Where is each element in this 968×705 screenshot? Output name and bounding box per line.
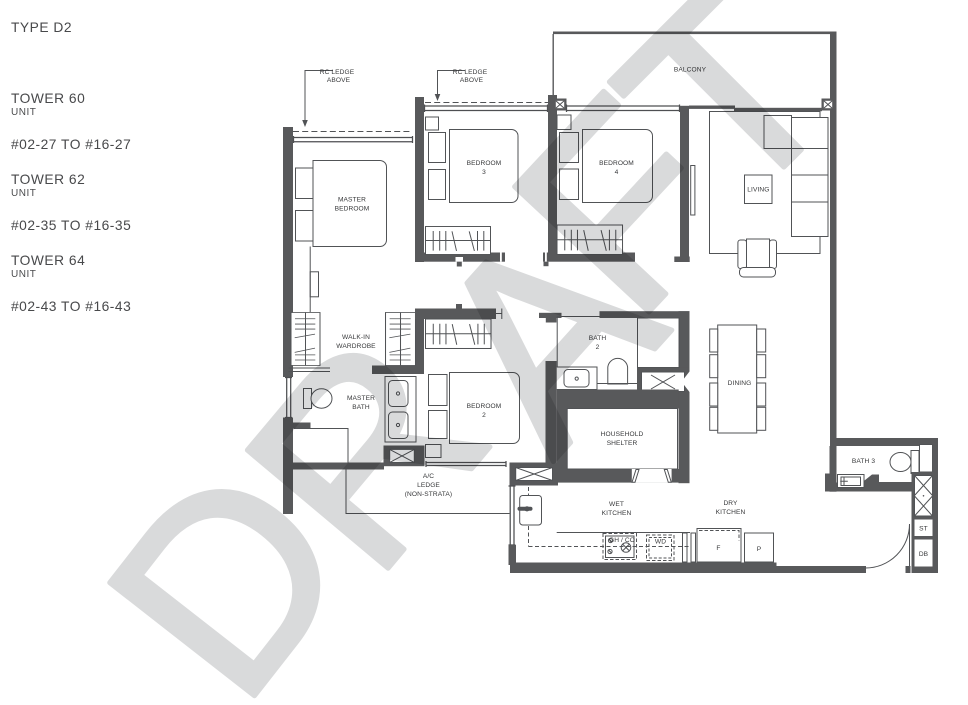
svg-text:UNIT: UNIT [11,269,36,280]
svg-text:#02-27 TO #16-27: #02-27 TO #16-27 [11,137,131,152]
svg-text:RC LEDGE: RC LEDGE [453,69,488,76]
svg-text:TOWER 60: TOWER 60 [11,91,85,106]
svg-text:RC LEDGE: RC LEDGE [320,69,355,76]
svg-text:KITCHEN: KITCHEN [602,510,632,517]
svg-text:2: 2 [482,412,486,419]
svg-text:DB: DB [919,551,929,558]
svg-text:TOWER 64: TOWER 64 [11,253,85,268]
svg-text:BATH 3: BATH 3 [852,458,875,465]
svg-text:ABOVE: ABOVE [327,77,351,84]
svg-text:WET: WET [609,501,624,508]
svg-text:#02-35 TO #16-35: #02-35 TO #16-35 [11,218,131,233]
svg-text:TYPE D2: TYPE D2 [11,20,72,35]
svg-text:BEDROOM: BEDROOM [335,206,370,213]
svg-text:UNIT: UNIT [11,107,36,118]
svg-text:TOWER 62: TOWER 62 [11,172,85,187]
svg-text:ST: ST [919,526,928,533]
svg-text:KITCHEN: KITCHEN [716,509,746,516]
svg-text:P: P [757,546,762,553]
svg-text:ABOVE: ABOVE [460,77,484,84]
svg-text:F: F [716,545,720,552]
svg-text:MASTER: MASTER [338,197,366,204]
svg-text:DRY: DRY [723,500,738,507]
svg-text:UNIT: UNIT [11,188,36,199]
svg-text:WD: WD [655,539,666,546]
svg-text:GH / CO: GH / CO [609,537,635,544]
svg-text:#02-43 TO #16-43: #02-43 TO #16-43 [11,299,131,314]
svg-text:DINING: DINING [728,380,752,387]
